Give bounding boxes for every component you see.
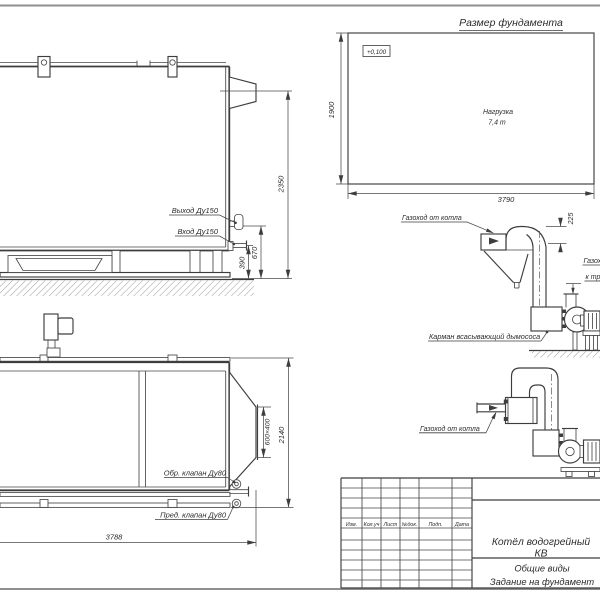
boiler-plan-view: Обр. клапан Ду80 Пред. клапан Ду80 600×4…: [0, 314, 294, 547]
flue-diagram-direct: Газоход от котла: [419, 368, 600, 477]
base-foot: [589, 472, 595, 477]
safety-valve-label: Пред. клапан Ду80: [160, 511, 227, 520]
titleblock-col-koluch: Кол.уч: [364, 522, 380, 528]
base-foot: [566, 472, 572, 477]
titleblock-col-list: Лист: [383, 522, 398, 528]
fan-motor: [584, 311, 600, 331]
burner-body: [44, 314, 58, 340]
flue-outlet-stub: [229, 77, 256, 109]
outlet-label: Выход Ду150: [172, 206, 219, 215]
titleblock-col-ndok: №док.: [402, 522, 418, 528]
doc-type-line1: Общие виды: [514, 564, 569, 574]
flue-outlet-transition: [229, 372, 256, 487]
flange-bolt-icon: [560, 434, 564, 438]
lug-base: [168, 355, 177, 361]
fan-base-plate: [561, 468, 600, 472]
lug-base: [40, 500, 48, 508]
depth-dimension: 1900: [327, 101, 336, 119]
flange-bolt-icon: [504, 400, 508, 404]
leader-dot: [233, 481, 236, 484]
frame-rail-top: [0, 358, 230, 362]
to-stack-label-line1: Газоход: [584, 257, 600, 265]
title-block: Изм. Кол.уч Лист №док. Подп. Дата Котёл …: [341, 478, 600, 588]
height-dimension: 2350: [277, 175, 286, 194]
leader-dot: [233, 243, 236, 246]
doc-type-line2: Задание на фундамент: [490, 577, 594, 587]
titleblock-col-podp: Подп.: [428, 522, 442, 528]
burner-motor: [58, 318, 73, 334]
pocket-label: Карман всасывающий дымососа: [429, 332, 540, 341]
titleblock-col-izm: Изм.: [346, 522, 357, 528]
flue-from-boiler-label: Газоход от котла: [402, 214, 462, 222]
frame-rail-bottom2: [0, 503, 230, 507]
load-label-line1: Нагрузка: [483, 109, 513, 116]
foundation-plan: Размер фундамента +0,100 Нагрузка 7,4 т …: [327, 17, 594, 204]
lug-base: [168, 500, 177, 508]
load-label-line2: 7,4 т: [488, 120, 506, 127]
foundation-title: Размер фундамента: [459, 17, 563, 29]
offset-dimension: 225: [568, 213, 575, 226]
frame-leg: [112, 251, 120, 273]
flue-from-boiler-label: Газоход от котла: [420, 425, 480, 433]
flange-bolt-icon: [563, 310, 567, 314]
outlet-height-dimension: 670: [250, 246, 259, 259]
fan-suction-box: [533, 430, 559, 456]
check-valve-label: Обр. клапан Ду80: [164, 469, 227, 478]
suction-pocket: [531, 307, 562, 331]
burner-mount: [47, 348, 60, 357]
titleblock-col-data: Дата: [454, 522, 469, 528]
drip-tray: [8, 256, 112, 273]
to-stack-label-line2: к трубе: [586, 273, 600, 281]
lug-hole-icon: [170, 60, 175, 65]
lug-hole-icon: [41, 60, 46, 65]
flow-arrow-icon: [489, 405, 498, 411]
cyclone-cone-left: [484, 251, 514, 283]
flue-diagram-with-cyclone: Газоход от котла Карман всасывающий дымо…: [401, 213, 600, 358]
duct-inner-line: [527, 235, 534, 308]
motor-base: [583, 331, 600, 336]
frame-rail-bottom1: [0, 493, 230, 497]
product-title-line1: Котёл водогрейный: [492, 537, 591, 548]
ground-hatching: [0, 281, 254, 297]
fan-support: [573, 332, 577, 350]
inlet-label: Вход Ду150: [178, 227, 219, 236]
base-leg: [586, 336, 590, 351]
fan-hub: [566, 447, 574, 455]
cyclone-cone-right: [520, 254, 528, 283]
frame-leg: [213, 251, 222, 273]
base-rail: [0, 273, 230, 278]
leader-dot: [234, 222, 237, 225]
flue-transition-box: [506, 398, 538, 424]
plan-length-dimension: 3788: [106, 533, 124, 542]
elevation-mark: +0,100: [367, 49, 387, 56]
base-leg: [594, 336, 598, 351]
flue-outlet-dimension: 600×400: [265, 418, 272, 445]
frame-leg: [190, 251, 200, 273]
leader-arrow-icon: [491, 412, 496, 420]
leader-arrow-icon: [486, 228, 494, 233]
ground-hatching: [532, 351, 600, 357]
plan-width-dimension: 2140: [277, 426, 286, 445]
drawing-sheet: Размер фундамента +0,100 Нагрузка 7,4 т …: [0, 0, 600, 600]
leader-dot: [546, 331, 549, 334]
boiler-front-view: Выход Ду150 Вход Ду150 2350 670 390: [0, 57, 292, 297]
inlet-height-dimension: 390: [238, 256, 247, 269]
product-title-line2: КВ: [535, 549, 548, 560]
drawing-canvas: Размер фундамента +0,100 Нагрузка 7,4 т …: [0, 0, 600, 600]
width-dimension: 3790: [498, 195, 516, 204]
leader-dot: [232, 506, 235, 509]
cyclone-volute-and-duct: [506, 227, 546, 308]
flange-bolt-icon: [504, 417, 508, 421]
